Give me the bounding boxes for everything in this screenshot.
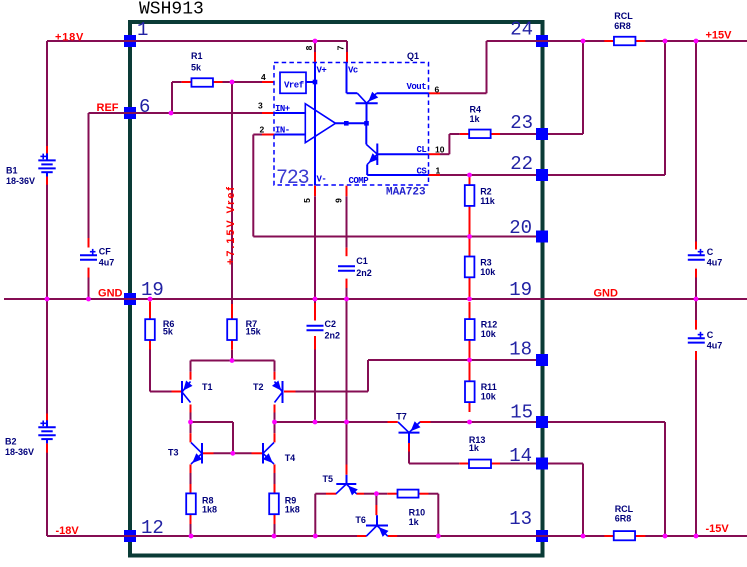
svg-text:18-36V: 18-36V <box>5 447 34 457</box>
svg-text:2n2: 2n2 <box>325 331 341 341</box>
svg-text:T2: T2 <box>253 382 264 392</box>
svg-text:C2: C2 <box>325 319 337 329</box>
svg-text:Vref: Vref <box>284 81 304 91</box>
svg-text:8: 8 <box>304 45 314 50</box>
svg-text:COMP: COMP <box>349 176 370 186</box>
svg-text:1: 1 <box>436 166 441 176</box>
svg-text:REF: REF <box>97 102 119 114</box>
svg-text:Vout: Vout <box>407 82 427 92</box>
svg-text:10k: 10k <box>481 329 497 339</box>
svg-text:1k: 1k <box>409 517 420 527</box>
svg-text:V+: V+ <box>317 66 327 76</box>
svg-text:-18V: -18V <box>56 525 80 537</box>
svg-text:2n2: 2n2 <box>356 268 372 278</box>
svg-text:V-: V- <box>317 175 327 185</box>
svg-text:12: 12 <box>141 517 164 539</box>
svg-text:IN-: IN- <box>275 126 290 136</box>
svg-text:R11: R11 <box>481 382 497 392</box>
svg-text:C: C <box>707 330 714 340</box>
svg-text:1k8: 1k8 <box>202 505 217 515</box>
svg-text:Vc: Vc <box>348 66 358 76</box>
svg-text:24: 24 <box>510 19 533 41</box>
svg-text:MAA723: MAA723 <box>386 187 426 199</box>
svg-text:23: 23 <box>510 112 533 134</box>
svg-text:723: 723 <box>276 167 309 190</box>
svg-text:4u7: 4u7 <box>99 258 115 268</box>
svg-text:B2: B2 <box>5 437 17 447</box>
svg-text:4: 4 <box>261 72 266 82</box>
svg-text:R3: R3 <box>480 258 492 268</box>
svg-text:11k: 11k <box>480 196 496 206</box>
svg-text:1: 1 <box>137 19 148 41</box>
svg-text:B1: B1 <box>6 166 18 176</box>
svg-text:C: C <box>707 247 714 257</box>
svg-text:GND: GND <box>98 288 123 300</box>
svg-text:CL: CL <box>417 145 427 155</box>
svg-text:R12: R12 <box>481 320 498 330</box>
svg-text:4u7: 4u7 <box>707 258 723 268</box>
svg-text:18-36V: 18-36V <box>6 176 35 186</box>
svg-text:6R8: 6R8 <box>615 514 632 524</box>
svg-text:RCL: RCL <box>614 11 633 21</box>
svg-text:R2: R2 <box>480 187 492 197</box>
svg-text:+7.15V Vref: +7.15V Vref <box>225 185 237 265</box>
svg-text:Q1: Q1 <box>407 51 419 61</box>
svg-text:GND: GND <box>594 288 619 300</box>
svg-text:7: 7 <box>335 45 345 50</box>
svg-text:CS: CS <box>417 167 428 177</box>
svg-text:T4: T4 <box>285 453 296 463</box>
svg-text:4u7: 4u7 <box>707 341 723 351</box>
svg-text:3: 3 <box>258 101 263 111</box>
svg-text:RCL: RCL <box>615 504 634 514</box>
svg-text:+15V: +15V <box>706 29 733 41</box>
svg-text:R4: R4 <box>470 105 482 115</box>
svg-text:T5: T5 <box>323 474 334 484</box>
svg-text:15: 15 <box>510 402 533 424</box>
svg-text:13: 13 <box>509 508 532 530</box>
svg-text:5: 5 <box>302 198 312 203</box>
svg-text:2: 2 <box>260 125 265 135</box>
svg-text:9: 9 <box>333 198 343 203</box>
svg-text:6: 6 <box>435 85 440 95</box>
svg-text:1k: 1k <box>470 114 481 124</box>
svg-text:T6: T6 <box>355 515 366 525</box>
svg-text:-15V: -15V <box>706 523 730 535</box>
svg-text:19: 19 <box>141 279 164 301</box>
svg-text:T7: T7 <box>396 412 407 422</box>
svg-text:10: 10 <box>435 145 445 155</box>
svg-text:CF: CF <box>99 247 111 257</box>
svg-text:IN+: IN+ <box>275 104 290 114</box>
svg-text:10k: 10k <box>481 392 497 402</box>
svg-text:T3: T3 <box>168 448 179 458</box>
svg-text:5k: 5k <box>163 327 174 337</box>
svg-text:1k8: 1k8 <box>285 505 300 515</box>
svg-text:15k: 15k <box>246 327 262 337</box>
svg-text:19: 19 <box>509 279 532 301</box>
svg-text:T1: T1 <box>202 382 213 392</box>
svg-text:6R8: 6R8 <box>614 21 631 31</box>
svg-text:5k: 5k <box>191 63 202 73</box>
svg-text:R1: R1 <box>191 51 203 61</box>
svg-text:22: 22 <box>510 153 533 175</box>
svg-text:WSH913: WSH913 <box>139 0 204 20</box>
svg-text:C1: C1 <box>356 256 368 266</box>
svg-text:1k: 1k <box>469 443 480 453</box>
svg-text:18: 18 <box>509 339 532 361</box>
svg-text:6: 6 <box>139 96 150 118</box>
svg-text:R10: R10 <box>409 508 426 518</box>
svg-text:20: 20 <box>509 217 532 239</box>
svg-text:10k: 10k <box>480 267 496 277</box>
svg-text:14: 14 <box>509 445 532 467</box>
svg-text:+18V: +18V <box>55 32 84 44</box>
